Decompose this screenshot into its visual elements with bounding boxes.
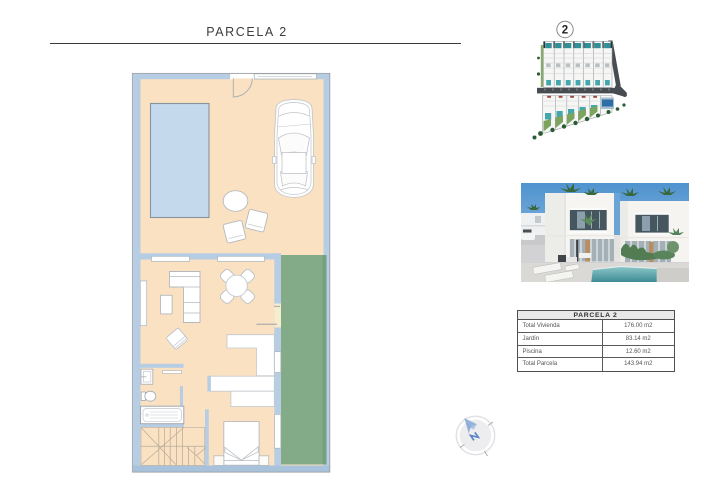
- svg-text:2: 2: [562, 25, 568, 37]
